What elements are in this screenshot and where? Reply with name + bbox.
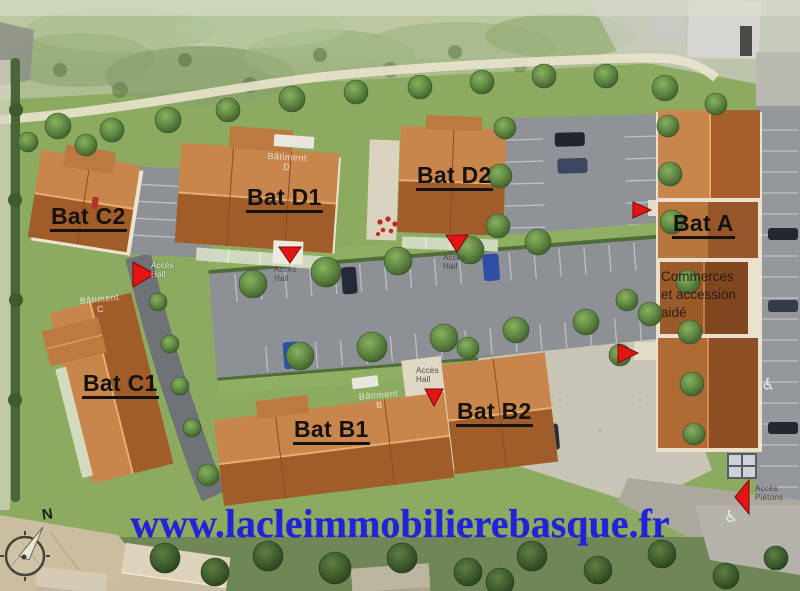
- acces-hall-label-d2: Accès Hall: [443, 253, 477, 271]
- skylight-grid: [727, 453, 757, 479]
- building-label-bat-c2: Bat C2: [50, 205, 127, 232]
- roof-label-batiment-d: BâtimentD: [257, 150, 316, 174]
- building-label-bat-b2: Bat B2: [456, 400, 533, 427]
- commerce-note: Commerces et accession aidé: [661, 268, 759, 321]
- parked-car: [482, 253, 500, 281]
- parked-car: [557, 158, 587, 174]
- building-label-bat-d1: Bat D1: [246, 186, 323, 213]
- acces-pietons-label: Accès Piétons: [755, 484, 795, 502]
- building-label-bat-d2: Bat D2: [416, 164, 493, 191]
- parked-car: [555, 132, 585, 147]
- acces-hall-label-b: Accès Hall: [416, 366, 450, 384]
- building-label-bat-a: Bat A: [672, 212, 735, 239]
- parked-car: [768, 300, 798, 312]
- parked-car: [341, 266, 358, 294]
- boundary-hedge: [0, 58, 23, 510]
- acces-hall-label-c: Accès Hall: [151, 261, 185, 279]
- parking-lot-east: [756, 106, 800, 532]
- building-label-bat-c1: Bat C1: [82, 372, 159, 399]
- wheelchair-icon: ♿: [724, 507, 738, 526]
- access-arrow-hall-d1: [272, 240, 303, 265]
- building-label-bat-b1: Bat B1: [293, 418, 370, 445]
- compass-north-label: N: [41, 505, 54, 523]
- parked-car: [768, 228, 798, 240]
- acces-hall-label-d1: Accès Hall: [274, 265, 308, 283]
- parked-car: [768, 422, 798, 434]
- site-plan-image: ♿ ♿ Bat C2 Bat D1 Bat D2 Bat A Bat C1 Ba…: [0, 0, 800, 591]
- website-url: www.lacleimmobilierebasque.fr: [130, 500, 669, 547]
